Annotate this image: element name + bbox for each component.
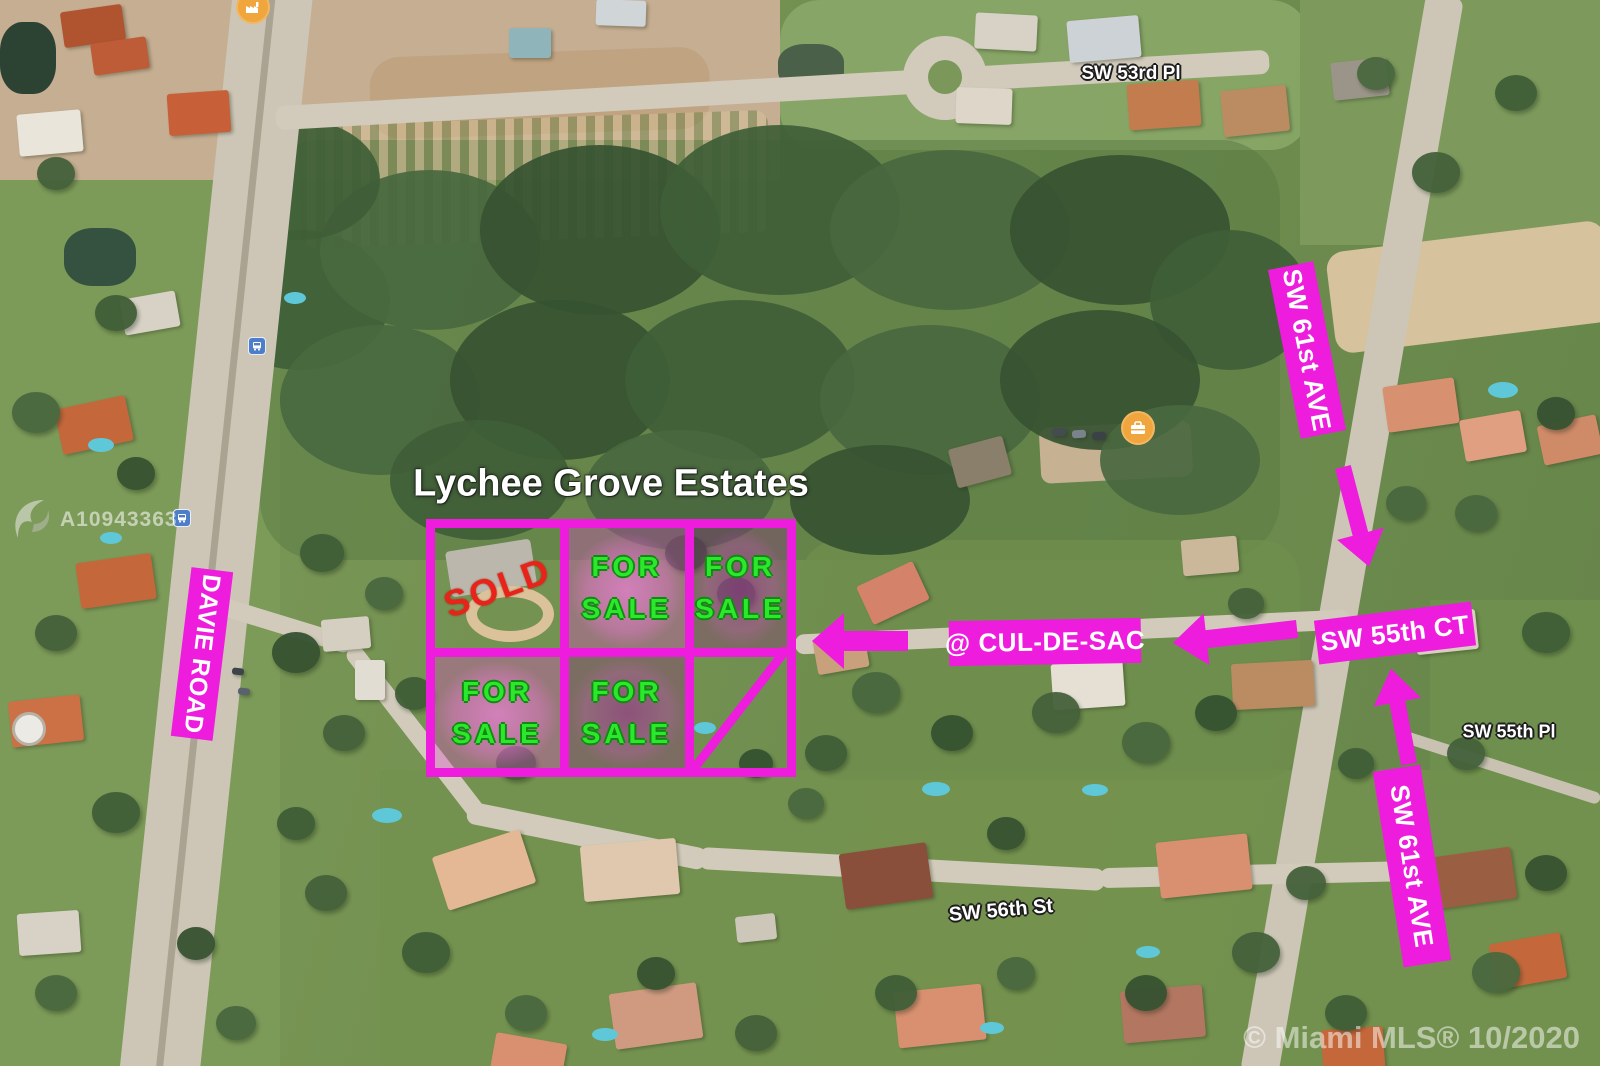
tree [1125, 975, 1167, 1011]
lot-cell-for-sale-2: FOR SALE [694, 528, 787, 648]
listing-id-watermark: A10943363 [60, 508, 178, 532]
tree [35, 975, 77, 1011]
tree [35, 615, 77, 651]
house-roof [1220, 85, 1290, 138]
tree [365, 577, 403, 610]
tree [37, 157, 75, 190]
tree [1412, 152, 1460, 193]
house-roof [580, 838, 681, 902]
tree [852, 672, 900, 713]
arrow-head [812, 613, 844, 669]
tree [1232, 932, 1280, 973]
house-roof [1126, 80, 1201, 131]
tree [875, 975, 917, 1011]
house-roof [16, 109, 83, 156]
house-roof [1052, 428, 1066, 437]
house-roof [232, 667, 245, 675]
tree [177, 927, 215, 960]
tree [402, 932, 450, 973]
pond [0, 22, 56, 94]
tree [1195, 695, 1237, 731]
tree [1472, 952, 1520, 993]
tree [92, 792, 140, 833]
briefcase-icon [1130, 421, 1146, 435]
tree [300, 534, 344, 572]
tree [1032, 692, 1080, 733]
for-sale-label-line1: FOR [705, 552, 776, 582]
house-roof [1231, 660, 1315, 710]
tree [95, 295, 137, 331]
house-roof [17, 910, 82, 956]
forest-canopy [790, 445, 970, 555]
lot-cell-for-sale-1: FOR SALE [569, 528, 685, 648]
development-title: Lychee Grove Estates [413, 463, 809, 506]
for-sale-label-line2: SALE [452, 719, 543, 749]
tree [1525, 855, 1567, 891]
street-label-sw-55th-pl: SW 55th Pl [1462, 722, 1555, 743]
lot-cell-for-sale-3: FOR SALE [435, 657, 560, 768]
tree [1338, 748, 1374, 779]
tree [1122, 722, 1170, 763]
house-roof [1155, 833, 1252, 898]
house-roof [735, 913, 777, 943]
house-roof [1092, 432, 1106, 441]
house-roof [355, 660, 385, 700]
tree [1228, 588, 1264, 619]
house-roof [955, 87, 1012, 125]
house-roof [1382, 377, 1460, 433]
for-sale-label-line1: FOR [591, 677, 662, 707]
street-label-sw-53rd-pl: SW 53rd Pl [1081, 63, 1180, 85]
tree [997, 957, 1035, 990]
tree [1537, 397, 1575, 430]
lot-cell-for-sale-4: FOR SALE [569, 657, 685, 768]
swimming-pool [980, 1022, 1004, 1034]
tree [505, 995, 547, 1031]
tree [987, 817, 1025, 850]
house-roof [1066, 15, 1141, 63]
house-roof [1072, 430, 1086, 439]
tree [805, 735, 847, 771]
transit-poi-icon [248, 337, 266, 355]
for-sale-label-line2: SALE [695, 594, 786, 624]
tree [272, 632, 320, 673]
swimming-pool [88, 438, 114, 452]
fountain [12, 712, 46, 746]
sold-label: SOLD [438, 549, 556, 626]
tree [931, 715, 973, 751]
tree [117, 457, 155, 490]
tree [1386, 486, 1426, 520]
swimming-pool [1136, 946, 1160, 958]
copyright-watermark: © Miami MLS® 10/2020 [1243, 1020, 1580, 1056]
house-roof [167, 90, 232, 136]
tree [12, 392, 60, 433]
for-sale-label-line2: SALE [582, 719, 673, 749]
pond [64, 228, 136, 286]
tree [735, 1015, 777, 1051]
house-roof [238, 687, 251, 695]
swimming-pool [100, 532, 122, 544]
for-sale-label-line1: FOR [462, 677, 533, 707]
tree [637, 957, 675, 990]
building-icon [245, 1, 261, 14]
tree [1522, 612, 1570, 653]
tree [1495, 75, 1537, 111]
house-roof [1181, 536, 1240, 577]
house-roof [321, 616, 372, 652]
bus-icon [252, 341, 262, 351]
tree [323, 715, 365, 751]
house-roof [596, 0, 647, 27]
swimming-pool [922, 782, 950, 796]
tree [305, 875, 347, 911]
bus-icon [177, 513, 187, 523]
swimming-pool [372, 808, 402, 823]
grid-divider-horizontal [435, 648, 787, 657]
shopping-poi-icon [1121, 411, 1155, 445]
tree [1357, 57, 1395, 90]
swimming-pool [284, 292, 306, 304]
house-roof [974, 12, 1038, 51]
tree [1455, 495, 1497, 531]
swimming-pool [592, 1028, 618, 1041]
house-roof [1459, 410, 1527, 462]
for-sale-label-line2: SALE [582, 594, 673, 624]
for-sale-label-line1: FOR [591, 552, 662, 582]
callout-cul-de-sac: @ CUL-DE-SAC [949, 618, 1142, 666]
swimming-pool [1082, 784, 1108, 796]
house-roof [509, 28, 551, 58]
arrow-head [1170, 613, 1210, 668]
arrow-shaft [840, 631, 908, 651]
swimming-pool [1488, 382, 1518, 398]
lot-cell-sold: SOLD [435, 528, 560, 648]
tree [277, 807, 315, 840]
lot-grid: SOLD FOR SALE FOR SALE FOR SALE FOR SALE [426, 519, 796, 777]
tree [788, 788, 824, 819]
aerial-listing-photo: SOLD FOR SALE FOR SALE FOR SALE FOR SALE… [0, 0, 1600, 1066]
